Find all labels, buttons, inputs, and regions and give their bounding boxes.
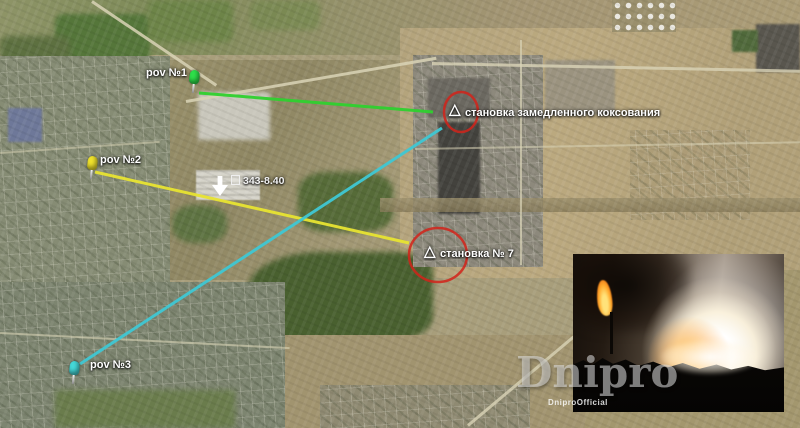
flare-stack-silhouette bbox=[610, 312, 613, 354]
pov1-label: pov №1 bbox=[146, 67, 187, 79]
triangle-marker-icon[interactable]: △ bbox=[424, 244, 436, 259]
arrow-note: 343-8.40 bbox=[231, 175, 284, 187]
bright-fire-core bbox=[661, 340, 759, 374]
arrow-note-text: 343-8.40 bbox=[243, 175, 284, 187]
sightline-pov1 bbox=[199, 93, 433, 112]
unit7-label: становка № 7 bbox=[440, 248, 514, 260]
pushpin-head-cyan bbox=[69, 361, 80, 376]
triangle-marker-icon[interactable]: △ bbox=[449, 102, 461, 117]
pushpin-needle bbox=[72, 375, 75, 384]
pov2-label: pov №2 bbox=[100, 154, 141, 166]
pov3-label: pov №3 bbox=[90, 359, 131, 371]
coking-unit-label: становка замедленного коксования bbox=[465, 107, 660, 119]
pushpin-needle bbox=[192, 84, 195, 93]
inset-photo-refinery-fire bbox=[573, 254, 784, 412]
satellite-map-view[interactable]: pov №1 pov №2 pov №3 343-8.40 △ становка… bbox=[0, 0, 800, 428]
small-square-icon bbox=[231, 175, 240, 185]
pushpin-head-green bbox=[189, 70, 200, 85]
pushpin-needle bbox=[90, 170, 93, 179]
pushpin-head-yellow bbox=[87, 156, 98, 171]
